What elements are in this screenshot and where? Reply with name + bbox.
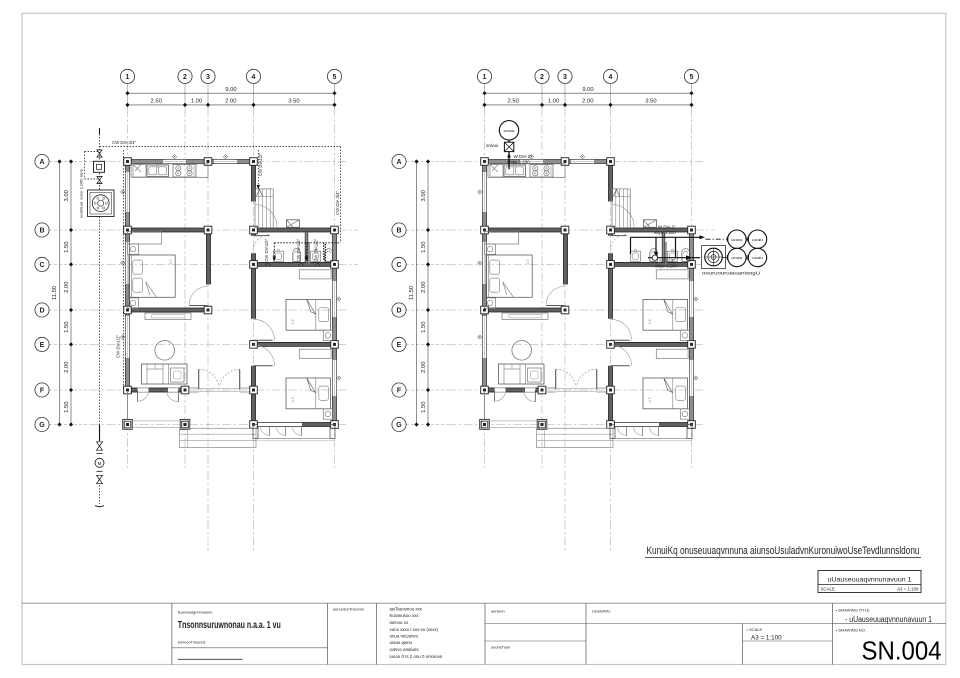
svg-text:1.50: 1.50 (421, 322, 427, 333)
svg-text:W DIA 2": W DIA 2" (658, 224, 676, 229)
svg-text:CW DIA1/2": CW DIA1/2" (314, 238, 319, 261)
svg-text:3.5': 3.5' (648, 319, 652, 325)
svg-text:3.50: 3.50 (288, 99, 299, 105)
svg-text:1: 1 (126, 74, 130, 81)
svg-text:9.00: 9.00 (225, 87, 236, 93)
svg-text:CW DIA 3/4": CW DIA 3/4" (112, 140, 136, 145)
svg-text:CW DIA1/2": CW DIA1/2" (258, 153, 263, 176)
svg-text:uoau: uoau (731, 237, 742, 242)
svg-text:CW DIA 3/4": CW DIA 3/4" (335, 191, 340, 215)
svg-text:2.50: 2.50 (151, 99, 162, 105)
svg-text:1.50: 1.50 (64, 402, 70, 413)
svg-text:aonUun: aonUun (491, 609, 505, 614)
svg-text:3.5': 3.5' (291, 397, 295, 403)
svg-text:iornvooTnsonns: iornvooTnsonns (178, 639, 206, 644)
svg-text:CW DIA1/2": CW DIA1/2" (264, 238, 269, 261)
svg-text:11.50: 11.50 (52, 286, 58, 300)
svg-text:3: 3 (563, 74, 567, 81)
svg-text:2: 2 (540, 74, 544, 81)
svg-text:oouruouruiauanisogU: oouruouruiauanisogU (702, 271, 760, 276)
svg-text:F: F (40, 388, 45, 395)
svg-text:1.50: 1.50 (64, 322, 70, 333)
svg-text:2.50: 2.50 (508, 99, 519, 105)
svg-text:uoau: uoau (504, 128, 515, 133)
svg-text:G: G (39, 422, 45, 429)
svg-text:B: B (396, 228, 401, 235)
svg-text:SCALE: SCALE (821, 587, 835, 592)
svg-text:C: C (39, 262, 44, 269)
svg-text:CW DIA1/2": CW DIA1/2" (116, 335, 121, 358)
svg-text:UsuiiolV/lu: UsuiiolV/lu (592, 609, 610, 614)
svg-text:iuoon 0 Is 2 onu 0 onsnovn: iuoon 0 Is 2 onu 0 onsnovn (390, 654, 443, 659)
svg-text:D: D (396, 308, 401, 315)
svg-text:5: 5 (333, 74, 337, 81)
svg-text:Tnsonnsuruwnonau n.a.a. 1 vu: Tnsonnsuruwnonau n.a.a. 1 vu (178, 620, 281, 631)
svg-text:vuno xxxx I xxx-xx (xxxx): vuno xxxx I xxx-xx (xxxx) (390, 627, 439, 632)
svg-text:uoau: uoau (752, 237, 763, 242)
svg-text:3.5': 3.5' (648, 397, 652, 403)
svg-text:F: F (397, 388, 402, 395)
svg-text:3: 3 (206, 74, 210, 81)
svg-text:2.00: 2.00 (64, 362, 70, 373)
svg-text:SN.004: SN.004 (862, 638, 942, 666)
svg-text:2.00: 2.00 (582, 99, 593, 105)
svg-text:iavTauovnou xxx: iavTauovnou xxx (390, 607, 423, 612)
svg-text:3.5': 3.5' (291, 319, 295, 325)
svg-text:11.50: 11.50 (409, 286, 415, 300)
svg-text:oointiuur vuno 1,000 Ians: oointiuur vuno 1,000 Ians (79, 169, 84, 218)
svg-text:1: 1 (483, 74, 487, 81)
svg-text:KunuiKq onuseuuaqvnnuna aiunso: KunuiKq onuseuuaqvnnuna aiunsoUsuladvnKu… (647, 545, 920, 557)
svg-text:3.00: 3.00 (64, 190, 70, 201)
svg-text:1.00: 1.00 (191, 99, 202, 105)
svg-text:slope 1:200: slope 1:200 (507, 159, 530, 164)
svg-text:E: E (40, 342, 45, 349)
svg-text:M: M (98, 461, 102, 466)
svg-text:B: B (39, 228, 44, 235)
svg-text:3.00: 3.00 (421, 190, 427, 201)
svg-text:slope 1:200: slope 1:200 (655, 264, 677, 269)
svg-text:1.50: 1.50 (421, 402, 427, 413)
svg-text:2.00: 2.00 (421, 362, 427, 373)
svg-text:E: E (397, 342, 402, 349)
svg-text:1.50: 1.50 (64, 242, 70, 253)
svg-text:Kuranusoo xxx: Kuranusoo xxx (390, 613, 420, 618)
svg-text:onlvuu: onlvuu (486, 143, 499, 148)
svg-text:iiuuvooulgnnnoasno: iiuuvooulgnnnoasno (178, 610, 213, 615)
svg-text:• DRAWING NO.: • DRAWING NO. (836, 628, 866, 633)
svg-text:ouonsTuon: ouonsTuon (491, 645, 510, 650)
svg-text:uoau: uoau (731, 255, 742, 260)
svg-text:3.50: 3.50 (645, 99, 656, 105)
svg-text:A3 = 1:100: A3 = 1:100 (897, 587, 919, 592)
svg-text:2.00: 2.00 (64, 282, 70, 293)
svg-text:uUauseuuaqvnnunavuun 1: uUauseuuaqvnnunavuun 1 (828, 577, 912, 584)
svg-text:D: D (39, 308, 44, 315)
svg-text:1.00: 1.00 (548, 99, 559, 105)
svg-text:- uUauseuuaqvnnunavuun 1: - uUauseuuaqvnnunavuun 1 (845, 615, 932, 624)
svg-text:A: A (396, 159, 401, 166)
svg-text:uoau: uoau (752, 255, 763, 260)
svg-text:4: 4 (252, 74, 256, 81)
svg-text:• DRAWING TITLE: • DRAWING TITLE (836, 608, 870, 613)
svg-text:slope 1:200: slope 1:200 (654, 230, 676, 235)
svg-text:3.5': 3.5' (526, 259, 530, 265)
svg-text:ooKvo analuns: ooKvo analuns (390, 647, 420, 652)
svg-text:oniao qwnu: oniao qwnu (390, 640, 413, 645)
svg-text:3.5': 3.5' (169, 259, 173, 265)
svg-text:aonunionTnsonns: aonunionTnsonns (333, 607, 364, 612)
svg-text:A: A (39, 159, 44, 166)
svg-text:4: 4 (609, 74, 613, 81)
svg-text:iavnou xx: iavnou xx (390, 620, 409, 625)
svg-text:5: 5 (690, 74, 694, 81)
svg-text:2.00: 2.00 (225, 99, 236, 105)
svg-text:1.50: 1.50 (421, 242, 427, 253)
svg-text:A3 = 1:100: A3 = 1:100 (751, 635, 782, 642)
svg-text:G: G (396, 422, 402, 429)
svg-text:onua nnUanvo: onua nnUanvo (390, 634, 419, 639)
svg-text:• SCALE: • SCALE (747, 627, 763, 632)
svg-text:2: 2 (183, 74, 187, 81)
svg-text:9.00: 9.00 (582, 87, 593, 93)
svg-text:2.00: 2.00 (421, 282, 427, 293)
svg-text:W DIA 2": W DIA 2" (514, 154, 533, 159)
svg-text:C: C (396, 262, 401, 269)
svg-text:CW DIA1/2": CW DIA1/2" (296, 238, 301, 261)
